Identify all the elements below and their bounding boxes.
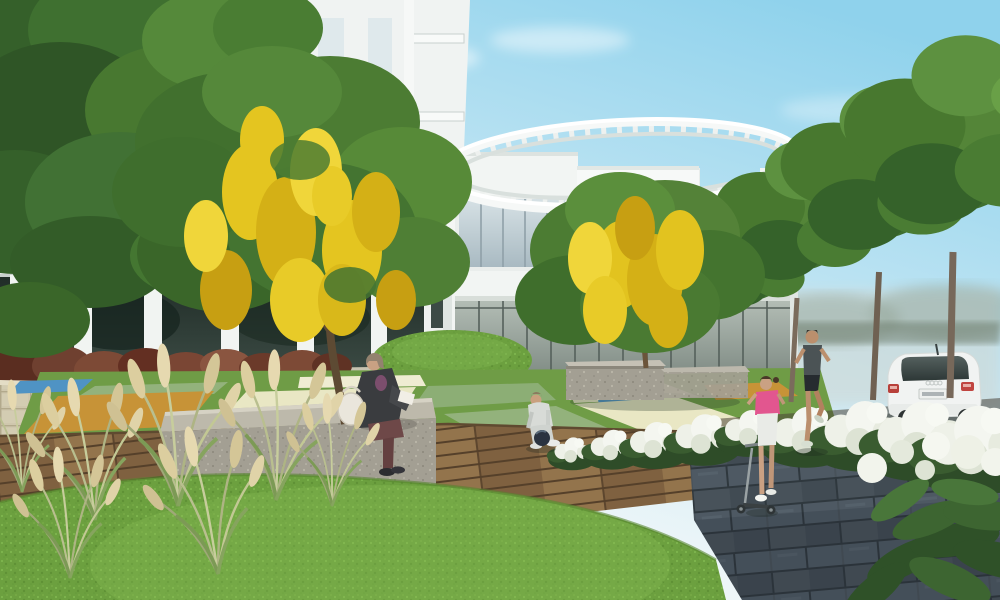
- courtyard-rendering: [0, 0, 1000, 600]
- license-plate: [919, 389, 947, 399]
- mound-highlight: [392, 334, 512, 370]
- rendering-canvas: [0, 0, 1000, 600]
- granite-planters: [565, 360, 750, 411]
